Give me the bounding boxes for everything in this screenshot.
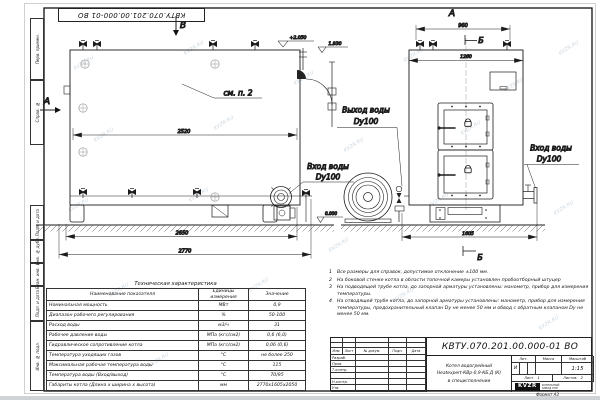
water-inlet-flange	[271, 187, 292, 208]
level-top: +2.050	[289, 35, 306, 41]
spec-row: Максимальная рабочая температура воды°С1…	[47, 361, 306, 371]
svg-text:KVZR.RU: KVZR.RU	[553, 200, 575, 217]
svg-text:KVZR.RU: KVZR.RU	[403, 47, 425, 64]
kvzr-logo: KVZR	[515, 383, 540, 391]
lit-mass-scale-values: И 1:15	[512, 363, 593, 375]
mass-value	[536, 363, 562, 375]
top-reference-number: КВТУ.070.201.00.000-01 ВО	[58, 8, 205, 22]
blower-fan	[341, 173, 545, 232]
level-marks	[278, 41, 348, 223]
svg-text:KVZR.RU: KVZR.RU	[343, 137, 365, 154]
dimensions: 2520 2650 2770 960 1260 1605 +2.050 1.93…	[40, 9, 579, 262]
svg-text:KVZR.RU: KVZR.RU	[73, 55, 95, 72]
spec-header-row: Наименование показателя Единицы измерени…	[47, 289, 306, 301]
dim-2770: 2770	[179, 249, 192, 255]
spec-row: Температура уходящих газов°Сне более 250	[47, 351, 306, 361]
frame-column-podp-data-1: Подп. и дата	[30, 205, 44, 240]
level-flue: 1.930	[328, 41, 341, 47]
spec-row: Рабочее давление водыМПа (кгс/см2)0,6 (6…	[47, 331, 306, 341]
outlet-label-line1: Выход воды	[342, 106, 390, 115]
note-item: 2На боковой стенке котла в области топоч…	[327, 278, 590, 285]
lit-mass-scale-header: Лит. Масса Масштаб	[512, 356, 593, 363]
dim-1605: 1605	[462, 231, 474, 237]
revision-table: Изм. Лист № докум. Подп. Дата Разраб. Пр…	[331, 338, 426, 392]
sheet-row: Лист1 Листов2	[512, 375, 593, 382]
svg-text:KVZR.RU: KVZR.RU	[558, 40, 580, 57]
title-block: КВТУ.070.201.00.000-01 ВО Изм. Лист № до…	[330, 337, 592, 391]
spec-row: Габариты котла (Длина х ширина х высота)…	[47, 381, 306, 391]
company-logo: KVZR КОТЕЛЬНЫЙ ЗАВОД РЭП	[512, 382, 593, 392]
dim-1260: 1260	[460, 54, 472, 60]
doc-number: КВТУ.070.201.00.000-01 ВО	[426, 338, 593, 356]
revision-grid	[331, 338, 426, 348]
upper-door	[437, 103, 493, 150]
inlet-label-line1: Вход воды	[307, 162, 349, 171]
top-reference-text: КВТУ.070.201.00.000-01 ВО	[78, 11, 186, 19]
strip-label: Справ. №	[35, 102, 40, 122]
note-item: 3На подводящей трубе котла, до запорной …	[327, 285, 590, 298]
dim-960: 960	[458, 23, 468, 29]
section-label-b-bottom: Б	[477, 253, 483, 262]
dim-2520: 2520	[178, 129, 191, 135]
inlet-label-line2: Dy100	[316, 173, 341, 182]
dim-2650: 2650	[176, 231, 189, 237]
note-ref: см. п. 2	[224, 89, 253, 98]
frame-column-vzam-inv: Взам. инв. №	[30, 263, 44, 286]
inlet-right-label-line2: Dy100	[537, 155, 562, 164]
section-label-v: В	[180, 21, 186, 31]
signature-rows: Разраб. Пров. Т.контр. Н.контр. Утв.	[331, 355, 426, 392]
strip-label: Взам. инв. №	[35, 261, 40, 289]
svg-text:KVZR.RU: KVZR.RU	[503, 77, 525, 94]
drawing-title: Котел водогрейный Heatexpert-КВр-0,9-КБ.…	[426, 356, 511, 392]
frame-column-inv-podl: Инв. № подл.	[30, 321, 44, 391]
title-block-right: Лит. Масса Масштаб И 1:15 Лист1 Листов2 …	[511, 356, 593, 392]
frame-column-sprav-no: Справ. №	[30, 80, 44, 145]
spec-table-title: Техническая характеристика	[46, 281, 305, 288]
spec-table-grid: Наименование показателя Единицы измерени…	[46, 288, 306, 391]
inlet-right-label-line1: Вход воды	[530, 144, 572, 153]
section-label-b-top: Б	[478, 36, 484, 45]
strip-label: Подп. и дата	[35, 290, 40, 317]
note-item: 4На отводящей трубе котла, до запорной а…	[327, 299, 590, 319]
revision-header: Изм. Лист № докум. Подп. Дата	[331, 348, 426, 355]
kvzr-logo-subtitle: КОТЕЛЬНЫЙ ЗАВОД РЭП	[542, 384, 560, 390]
svg-text:KVZR.RU: KVZR.RU	[428, 192, 450, 209]
svg-text:KVZR.RU: KVZR.RU	[213, 115, 235, 132]
spec-row: Температура воды (Вход/выход)°С70/95	[47, 371, 306, 381]
scale-value: 1:15	[562, 363, 594, 375]
frame-column-inv-dubl: Инв. № дубл.	[30, 240, 44, 263]
drawing-sheet: KVZR.RU KVZR.RU KVZR.RU KVZR.RU KVZR.RU …	[0, 0, 600, 400]
spec-row: Расход водым3/ч31	[47, 321, 306, 331]
pipe-labels	[289, 128, 579, 194]
paper-edge	[0, 396, 600, 400]
spec-row: Гидравлическое сопротивление котлаМПа (к…	[47, 341, 306, 351]
frame-column-perv-primen: Перв. примен.	[30, 18, 44, 80]
note-item: 1Все размеры для справок, допустимое отк…	[327, 270, 590, 277]
strip-label: Подп. и дата	[35, 209, 40, 236]
strip-label: Инв. № подл.	[35, 342, 40, 370]
frame-column-podp-data-2: Подп. и дата	[30, 286, 44, 321]
view-label-a: А	[448, 9, 455, 19]
level-ground: 0.000	[325, 211, 337, 216]
notes-list: 1Все размеры для справок, допустимое отк…	[327, 270, 590, 320]
svg-text:KVZR.RU: KVZR.RU	[188, 187, 210, 204]
svg-text:KVZR.RU: KVZR.RU	[183, 40, 205, 57]
outlet-label-line2: Dy100	[354, 117, 379, 126]
spec-row: Номинальная мощностьМВт0,9	[47, 301, 306, 311]
spec-table: Техническая характеристика Наименование …	[46, 281, 305, 391]
strip-label: Перв. примен.	[35, 34, 40, 64]
spec-row: Диапазон рабочего регулирования%50-100	[47, 311, 306, 321]
svg-text:KVZR.RU: KVZR.RU	[328, 237, 350, 254]
